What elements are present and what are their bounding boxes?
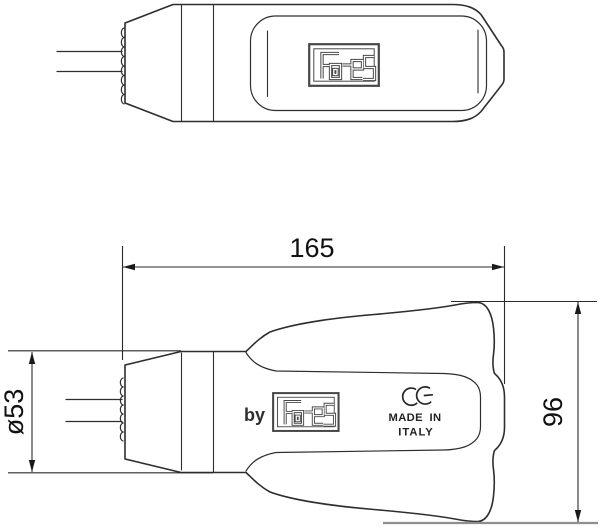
faes-logo — [309, 44, 379, 86]
made-in-text: MADE IN — [388, 412, 441, 424]
length-value: 165 — [289, 233, 334, 263]
arrowhead-up — [29, 352, 35, 364]
by-label: by — [244, 405, 265, 425]
arrowhead-down — [29, 460, 35, 472]
side-view: by MADE IN ITALY — [66, 303, 505, 522]
faes-logo — [273, 393, 338, 431]
arrowhead-left — [123, 264, 135, 270]
strain-relief-ribs — [120, 378, 123, 441]
label-plate — [251, 16, 487, 111]
ce-letter-c — [402, 388, 417, 406]
dimension-length: 165 — [123, 233, 505, 384]
arrowhead-up — [575, 302, 581, 314]
italy-text: ITALY — [398, 427, 433, 439]
ce-mark-icon — [402, 386, 433, 406]
strain-relief-ribs — [121, 28, 124, 104]
front-wing-band-line — [246, 353, 481, 472]
height-value: 96 — [538, 397, 568, 427]
diameter-value: ø53 — [0, 389, 29, 436]
technical-drawing: by MADE IN ITALY 165 96 ø53 — [0, 0, 600, 526]
drawing-canvas: by MADE IN ITALY 165 96 ø53 — [0, 0, 600, 526]
top-view — [57, 5, 504, 122]
arrowhead-down — [575, 510, 581, 522]
ce-letter-e-bar — [424, 395, 432, 396]
arrowhead-right — [492, 264, 504, 270]
